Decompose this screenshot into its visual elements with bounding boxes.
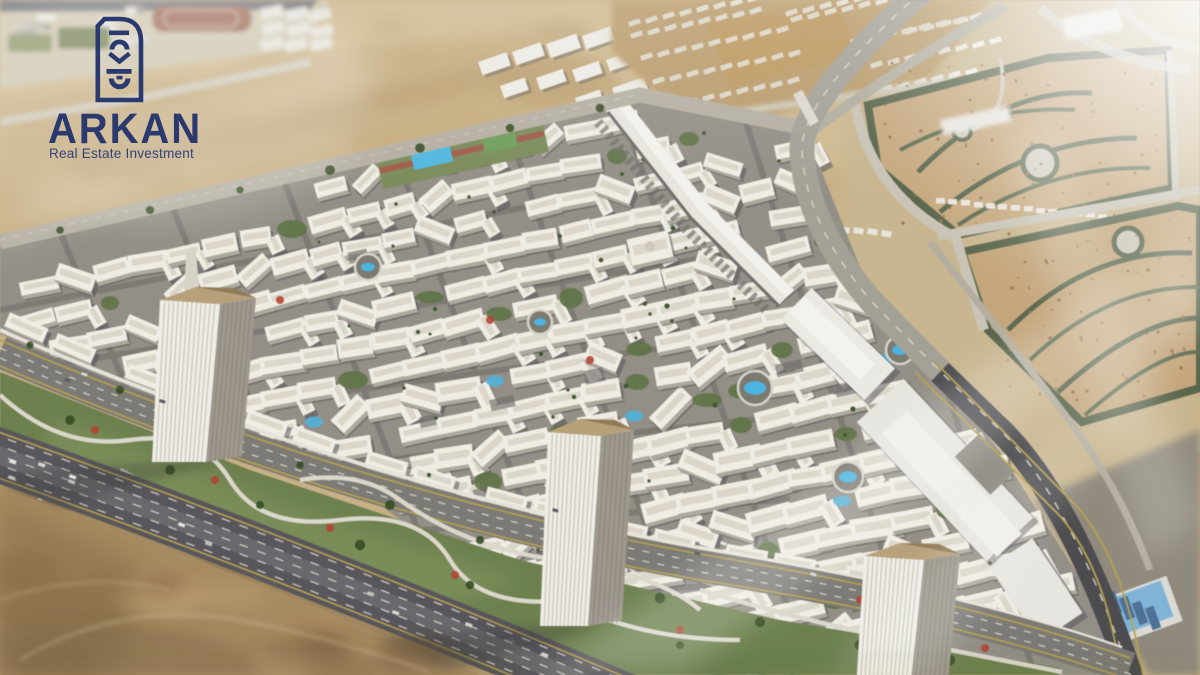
svg-text:Real Estate Investment: Real Estate Investment [49,145,194,161]
